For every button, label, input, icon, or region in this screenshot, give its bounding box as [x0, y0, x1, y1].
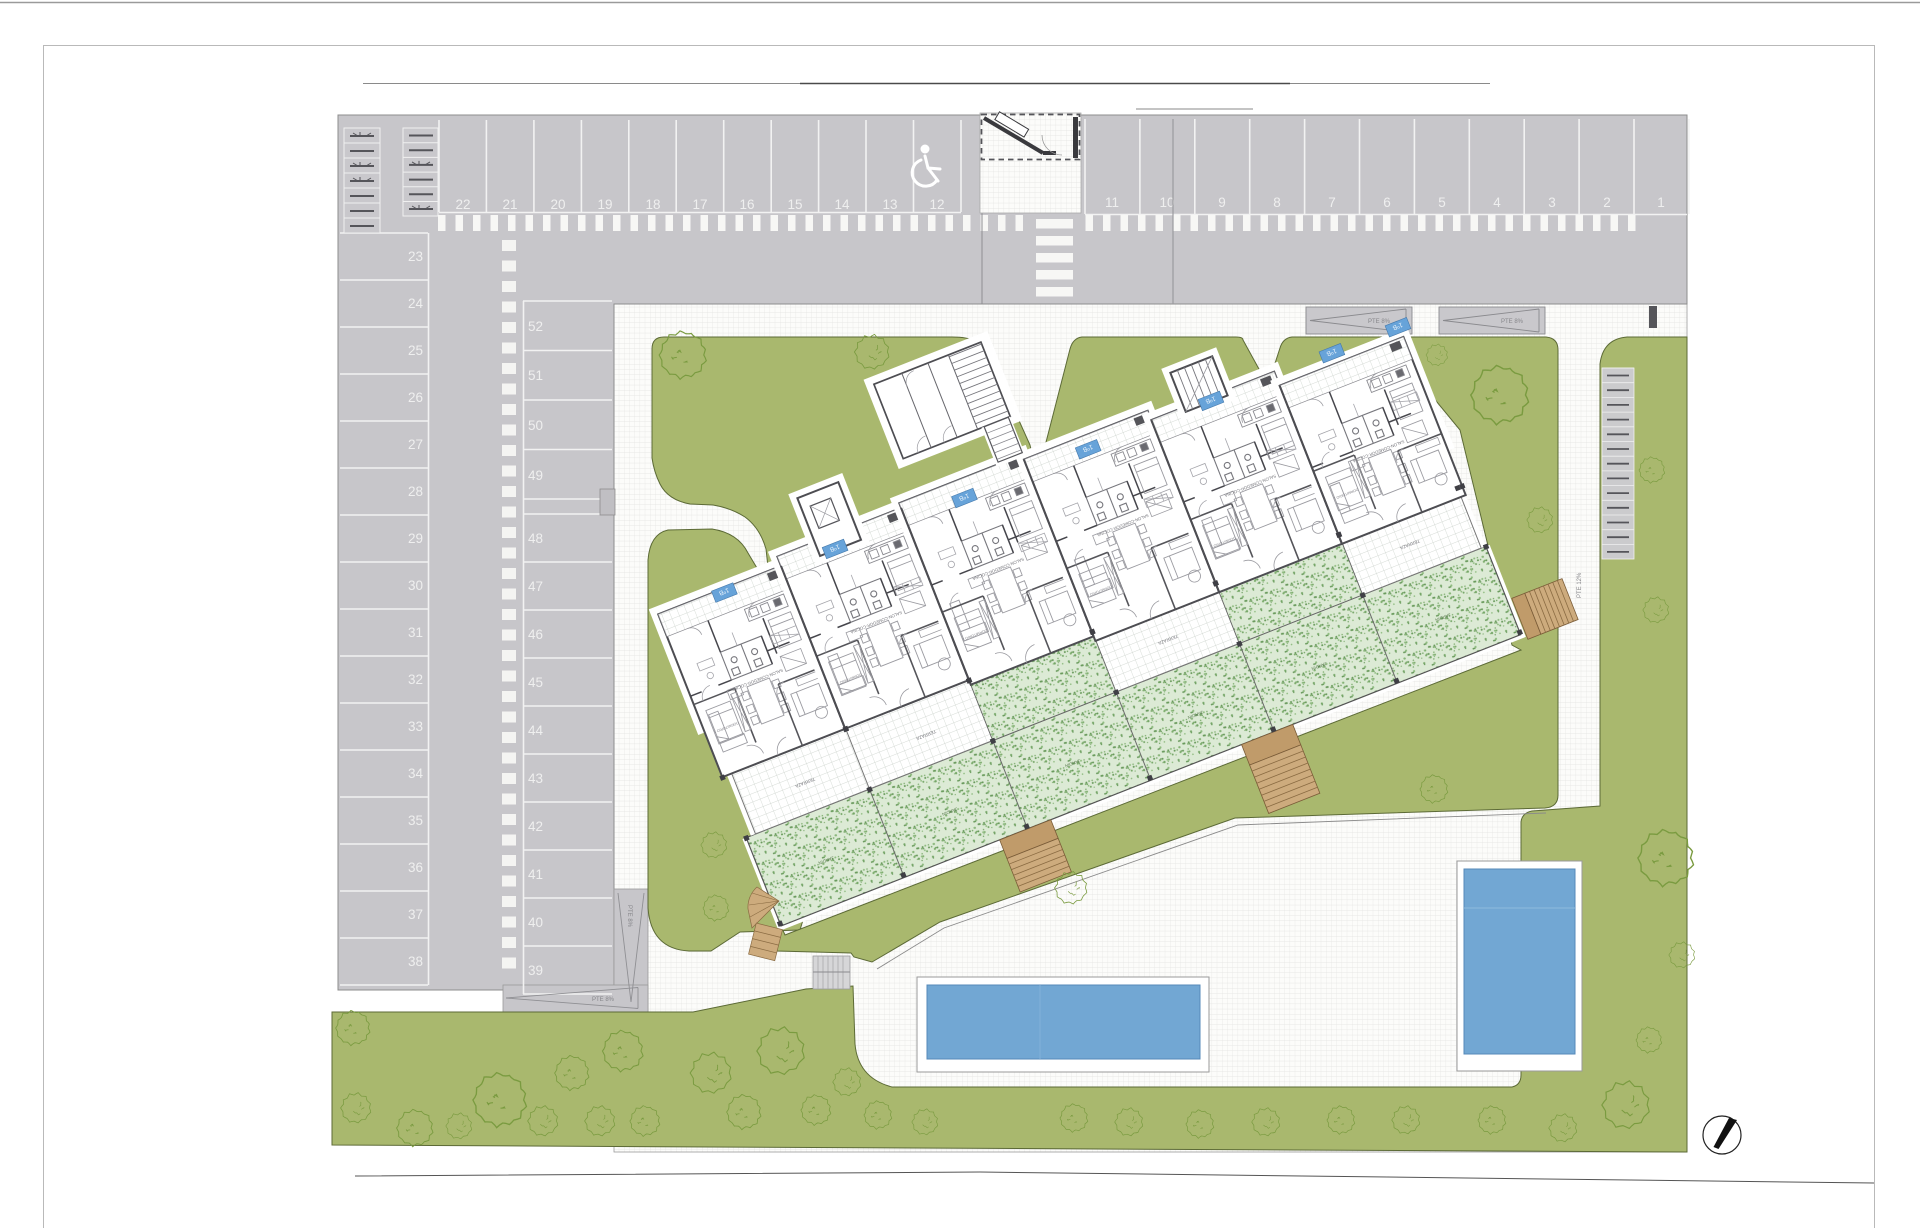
svg-text:4: 4 [1493, 195, 1501, 210]
svg-text:39: 39 [528, 963, 543, 978]
svg-text:26: 26 [408, 390, 423, 405]
svg-text:44: 44 [528, 723, 544, 738]
svg-text:9: 9 [1218, 195, 1226, 210]
svg-text:33: 33 [408, 719, 423, 734]
svg-text:25: 25 [408, 343, 423, 358]
svg-text:22: 22 [455, 197, 470, 212]
svg-text:10: 10 [1159, 195, 1174, 210]
svg-text:PTE 8%: PTE 8% [1501, 319, 1524, 325]
svg-text:38: 38 [408, 954, 423, 969]
svg-text:17: 17 [692, 197, 707, 212]
svg-text:46: 46 [528, 627, 543, 642]
svg-text:11: 11 [1105, 195, 1119, 210]
svg-text:13: 13 [882, 197, 897, 212]
svg-text:18: 18 [645, 197, 660, 212]
svg-text:PTE 8%: PTE 8% [626, 905, 632, 928]
svg-text:36: 36 [408, 860, 423, 875]
svg-text:12: 12 [929, 197, 944, 212]
svg-text:15: 15 [787, 197, 802, 212]
svg-text:34: 34 [408, 766, 424, 781]
svg-text:6: 6 [1383, 195, 1391, 210]
svg-text:40: 40 [528, 915, 543, 930]
svg-text:14: 14 [834, 197, 850, 212]
svg-text:41: 41 [528, 867, 543, 882]
svg-text:48: 48 [528, 531, 543, 546]
svg-text:28: 28 [408, 484, 423, 499]
svg-text:16: 16 [739, 197, 754, 212]
svg-text:51: 51 [528, 368, 543, 383]
svg-text:23: 23 [408, 249, 423, 264]
svg-text:21: 21 [502, 197, 517, 212]
svg-text:19: 19 [597, 197, 612, 212]
svg-text:47: 47 [528, 579, 543, 594]
svg-text:35: 35 [408, 813, 423, 828]
svg-text:PTE 8%: PTE 8% [1368, 319, 1391, 325]
svg-text:31: 31 [408, 625, 423, 640]
svg-text:30: 30 [408, 578, 423, 593]
svg-text:5: 5 [1438, 195, 1446, 210]
svg-text:24: 24 [408, 296, 424, 311]
svg-text:PTE 8%: PTE 8% [592, 997, 615, 1003]
svg-text:42: 42 [528, 819, 543, 834]
svg-text:29: 29 [408, 531, 423, 546]
svg-text:3: 3 [1548, 195, 1556, 210]
svg-text:32: 32 [408, 672, 423, 687]
svg-text:49: 49 [528, 468, 543, 483]
svg-text:43: 43 [528, 771, 543, 786]
svg-text:45: 45 [528, 675, 543, 690]
svg-text:50: 50 [528, 418, 543, 433]
svg-text:7: 7 [1328, 195, 1336, 210]
svg-text:37: 37 [408, 907, 423, 922]
svg-text:27: 27 [408, 437, 423, 452]
svg-text:8: 8 [1273, 195, 1281, 210]
svg-text:2: 2 [1603, 195, 1611, 210]
svg-text:20: 20 [550, 197, 565, 212]
svg-text:1: 1 [1657, 195, 1665, 210]
svg-text:52: 52 [528, 319, 543, 334]
svg-text:PTE 12%: PTE 12% [1577, 572, 1583, 598]
